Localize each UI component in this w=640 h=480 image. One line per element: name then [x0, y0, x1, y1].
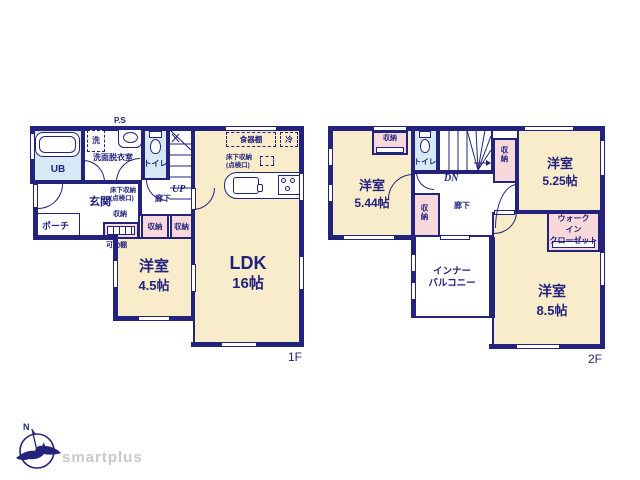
shelf-lines-movable	[107, 226, 135, 235]
west45-size: 4.5帖	[124, 278, 184, 294]
west85-name: 洋室	[517, 283, 587, 300]
stove-burner-2	[290, 178, 295, 183]
window-west525-top	[524, 126, 574, 131]
toilet-bowl-1f	[150, 139, 161, 154]
west544-size: 5.44帖	[342, 196, 402, 210]
floor1-plan: P.S UB 洗 洗面脱衣室 トイレ UP 廊下 玄関 ポーチ 床下収納 (点検…	[30, 126, 310, 370]
dn-label: DN	[444, 173, 458, 185]
closet-2f-tl-shelf	[376, 147, 404, 153]
closet-2f-mid-label: 収納	[420, 204, 429, 221]
window-west544-left-upper	[328, 148, 333, 166]
window-ldk-top	[225, 126, 277, 131]
ldk-name: LDK	[218, 253, 278, 275]
ub-label: UB	[42, 164, 74, 176]
opening-west45-ldk	[191, 264, 196, 292]
storage-entrance-label: 収納	[113, 211, 127, 219]
floor1-label: 1F	[288, 350, 302, 364]
window-west85-right	[600, 252, 605, 286]
movable-shelf-label: 可動棚	[106, 242, 127, 250]
toilet-bowl-2f	[420, 139, 430, 153]
kitchen-faucet	[257, 184, 263, 192]
fridge-label: 冷	[280, 135, 298, 144]
window-west544-left-lower	[328, 184, 333, 202]
west85-size: 8.5帖	[517, 303, 587, 319]
brand-text: smartplus	[62, 449, 143, 466]
window-balcony-left-lower	[411, 282, 416, 300]
entrance-label: 玄関	[89, 196, 111, 209]
window-west544-bottom	[343, 235, 395, 240]
window-ub-left	[30, 133, 35, 160]
toilet-tank-1f	[149, 131, 162, 138]
floor2-label: 2F	[588, 352, 602, 366]
kitchen-sink	[233, 177, 259, 194]
logo: N smartplus	[12, 420, 202, 476]
window-balcony-left-upper	[411, 254, 416, 272]
wall-right-1f	[299, 126, 304, 347]
opening-balcony-door	[440, 235, 470, 240]
porch-label: ポーチ	[42, 221, 69, 232]
floorplan-page: { "document_type": "floor-plan", "colors…	[0, 0, 640, 480]
hall-2f-label: 廊下	[454, 201, 470, 211]
window-ldk-right-lower	[299, 256, 304, 290]
stove-burner-3	[285, 186, 290, 191]
window-ldk-right-upper	[299, 173, 304, 201]
closet-2f-tl-label: 収納	[372, 135, 408, 143]
bathtub-inner	[39, 136, 76, 153]
window-west85-bottom	[516, 344, 560, 349]
closet-1f-b-label: 収納	[170, 222, 193, 231]
wall-balcony-left	[411, 237, 416, 318]
closet-1f-a-label: 収納	[141, 222, 169, 231]
hall-1f-label: 廊下	[155, 194, 171, 204]
west525-size: 5.25帖	[530, 174, 590, 188]
wic-label: ウォーク イン クローゼット	[548, 214, 599, 246]
ps-label: P.S	[114, 116, 126, 126]
compass-bird-icon: N	[12, 420, 64, 474]
up-label: UP	[172, 184, 185, 196]
toilet-tank-2f	[419, 131, 431, 138]
window-ldk-bottom	[221, 342, 257, 347]
stove-burner-1	[281, 178, 286, 183]
stairs-treads-2f	[440, 130, 491, 170]
ldk-size: 16帖	[218, 275, 278, 293]
window-west525-right	[600, 140, 605, 176]
cupboard-label: 食器棚	[228, 135, 274, 144]
floor2-plan: 洋室 5.44帖 収納 トイレ DN 収納 洋室 5.25帖 廊下 収納 ウォー…	[328, 126, 610, 370]
washroom-label: 洗面脱衣室	[82, 153, 144, 163]
west45-name: 洋室	[124, 258, 184, 276]
wall-balcony-right	[489, 237, 495, 318]
washbasin-bowl	[123, 132, 138, 143]
compass-north-label: N	[23, 422, 30, 432]
toilet-2f-label: トイレ	[410, 157, 440, 166]
toilet-1f-label: トイレ	[141, 159, 170, 169]
west525-name: 洋室	[530, 156, 590, 172]
inner-balcony-label: インナー バルコニー	[422, 266, 482, 291]
wall-bottom-entrance	[33, 235, 118, 240]
west544-name: 洋室	[342, 178, 402, 194]
wall-left-2f	[328, 126, 333, 239]
underfloor-entrance-label: 床下収納 (点検口)	[110, 187, 136, 203]
underfloor-ldk-label: 床下収納 (点検口)	[226, 154, 252, 170]
window-west45-left	[113, 260, 118, 288]
closet-2f-stairs-label: 収納	[500, 146, 509, 163]
balcony-railing	[412, 316, 493, 318]
washer-label: 洗	[92, 136, 100, 146]
underfloor-storage-box-ldk	[260, 156, 274, 166]
window-west45-bottom	[138, 316, 170, 321]
window-west544-top	[373, 126, 407, 131]
